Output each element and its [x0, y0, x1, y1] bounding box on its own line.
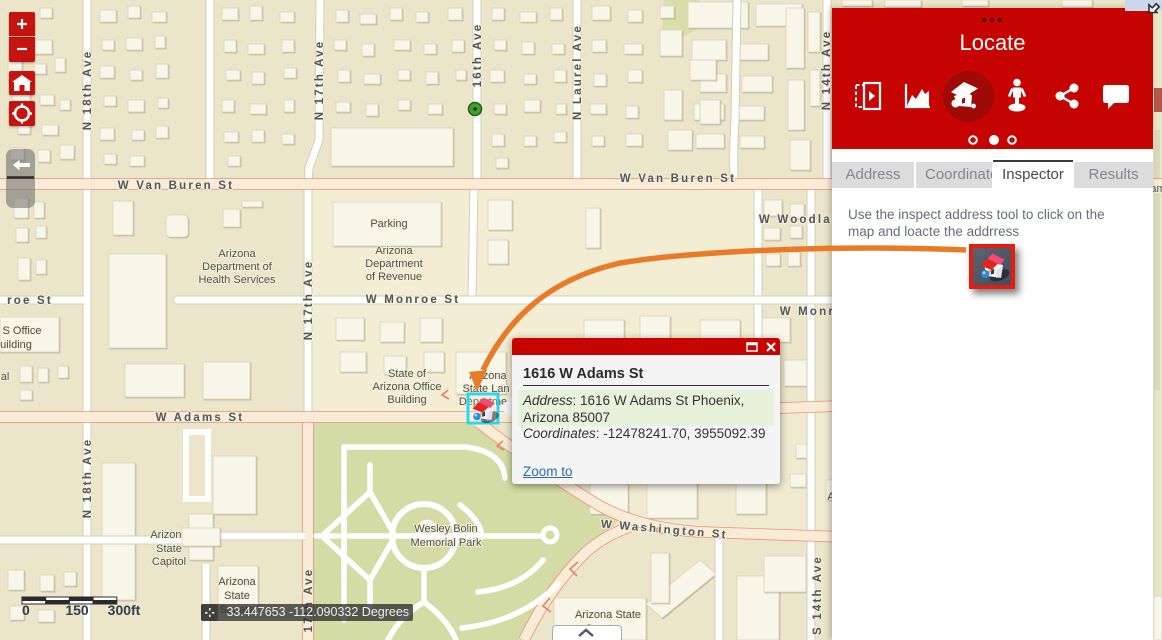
svg-text:Wesley Bolin: Wesley Bolin: [414, 523, 477, 535]
svg-text:Department: Department: [365, 258, 422, 270]
svg-text:Arizona Office: Arizona Office: [373, 381, 442, 393]
svg-text:of Revenue: of Revenue: [366, 271, 422, 283]
svg-text:17th Ave: 17th Ave: [303, 568, 315, 633]
svg-text:State: State: [156, 543, 182, 555]
svg-text:Health Services: Health Services: [198, 274, 276, 286]
svg-text:Arizona: Arizona: [218, 248, 256, 260]
svg-text:Parking: Parking: [370, 218, 407, 230]
svg-text:al: al: [1, 371, 10, 383]
svg-text:Arizona: Arizona: [469, 370, 507, 382]
svg-text:W Monroe St: W Monroe St: [366, 294, 460, 306]
svg-text:N 18th Ave: N 18th Ave: [82, 438, 94, 519]
svg-text:Building: Building: [387, 394, 426, 406]
svg-text:N 17th Ave: N 17th Ave: [314, 40, 326, 121]
svg-text:Arizona: Arizona: [375, 245, 413, 257]
svg-text:Arizona: Arizona: [218, 576, 256, 588]
svg-text:W Woodlan: W Woodlan: [759, 214, 841, 226]
svg-text:N 17th Ave: N 17th Ave: [303, 260, 315, 341]
svg-text:Capitol: Capitol: [152, 556, 186, 568]
svg-text:N Laurel Ave: N Laurel Ave: [572, 24, 584, 120]
svg-text:16th Ave: 16th Ave: [472, 23, 484, 88]
svg-text:150: 150: [65, 602, 89, 618]
svg-text:S Office: S Office: [3, 325, 42, 337]
svg-text:300ft: 300ft: [108, 602, 141, 618]
svg-text:uilding: uilding: [0, 339, 32, 351]
svg-text:Memorial Park: Memorial Park: [411, 537, 482, 549]
svg-text:N 18th Ave: N 18th Ave: [82, 50, 94, 131]
svg-text:W Adams St: W Adams St: [156, 412, 245, 424]
svg-text:State: State: [224, 590, 250, 602]
svg-text:State of: State of: [388, 368, 427, 380]
svg-text:roe St: roe St: [7, 295, 53, 307]
svg-text:Department of: Department of: [202, 261, 273, 273]
svg-text:W Van Buren St: W Van Buren St: [118, 180, 234, 192]
svg-text:W Van Buren St: W Van Buren St: [620, 173, 736, 185]
svg-text:0: 0: [22, 602, 30, 618]
svg-text:Arizona State: Arizona State: [575, 609, 641, 621]
svg-text:S 14th Ave: S 14th Ave: [812, 555, 824, 635]
